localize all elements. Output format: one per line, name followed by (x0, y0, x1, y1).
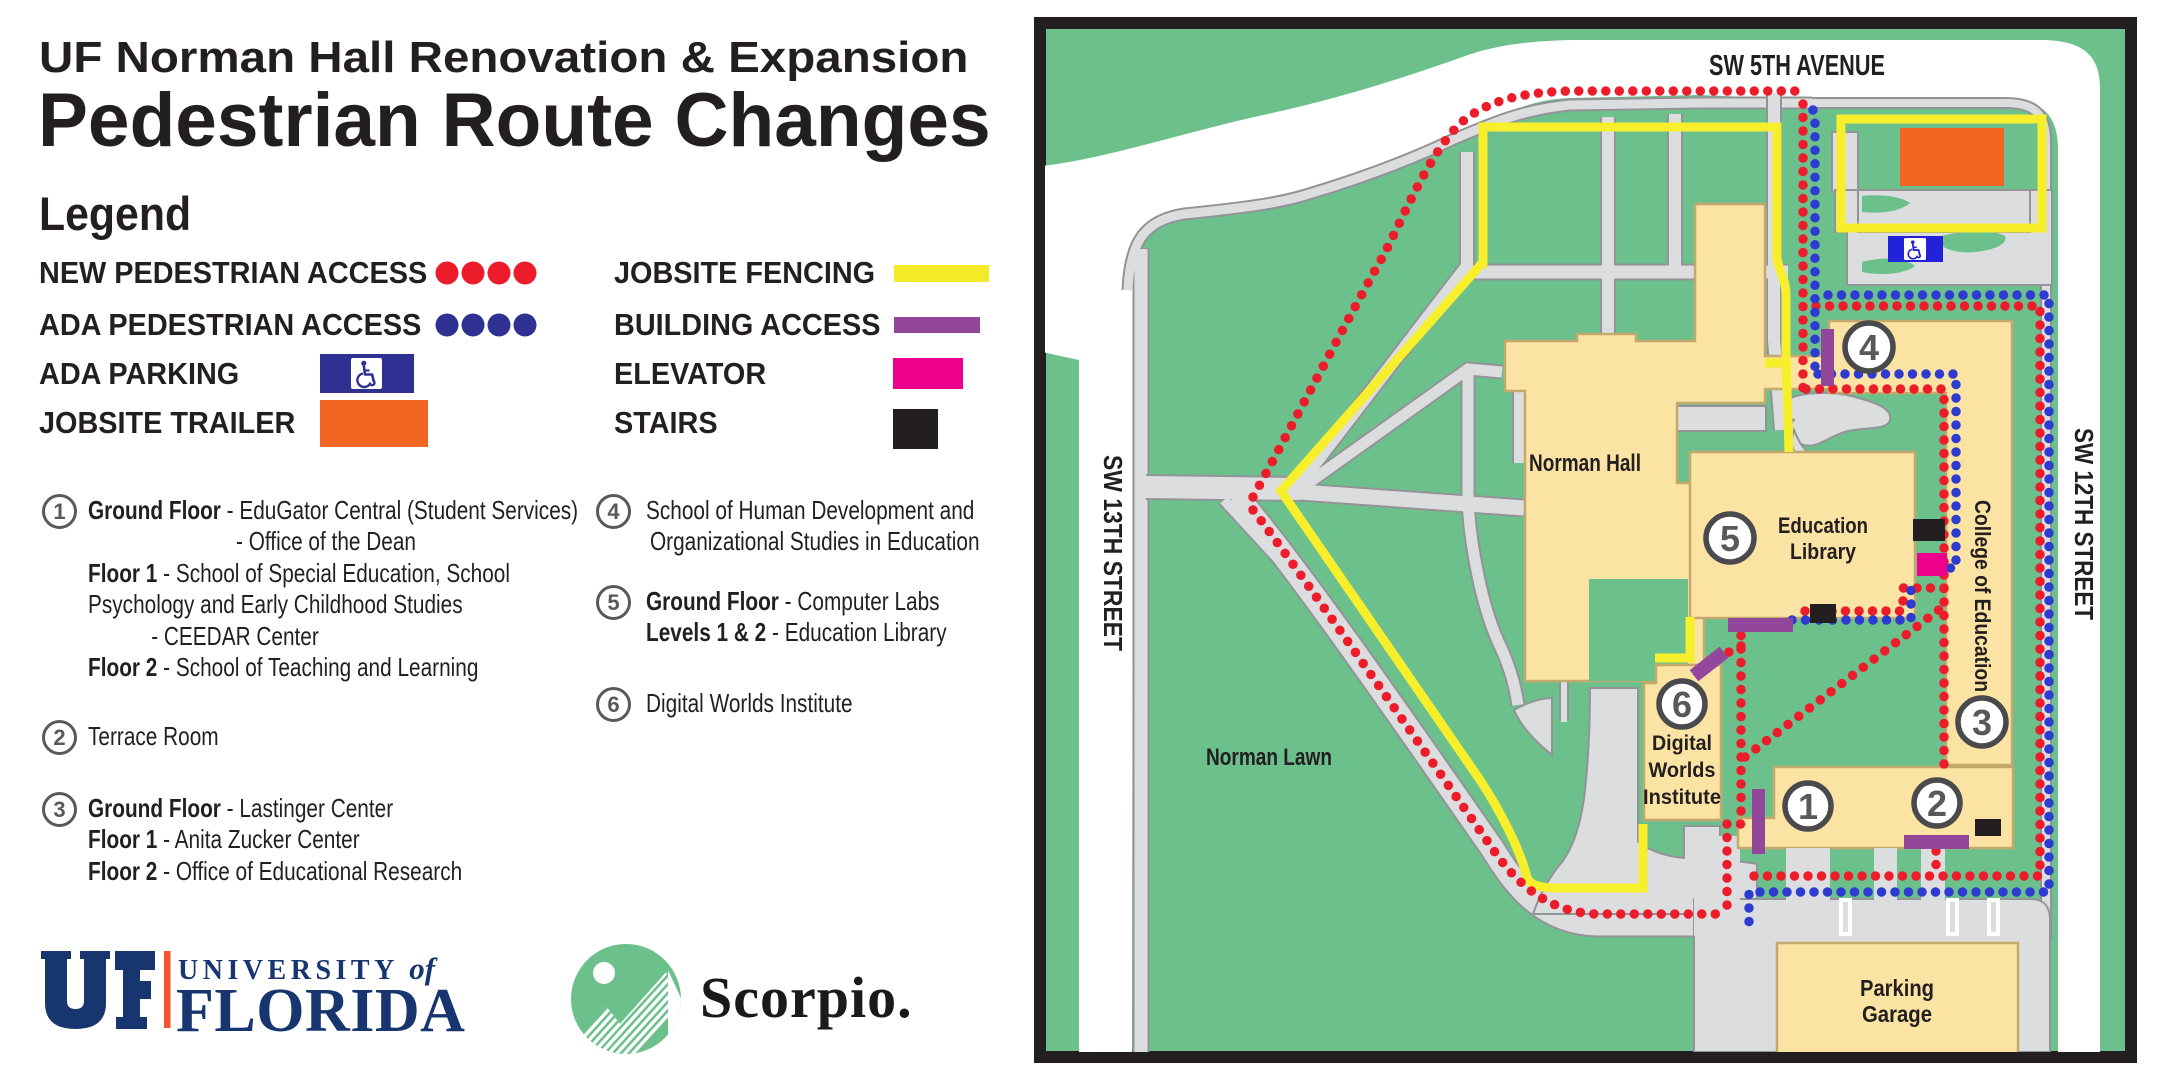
svg-text:Digital: Digital (1652, 732, 1712, 755)
svg-text:3: 3 (1972, 702, 1992, 743)
svg-text:Education: Education (1778, 513, 1868, 538)
svg-text:Norman Hall: Norman Hall (1529, 450, 1641, 477)
svg-text:Library: Library (1790, 539, 1857, 564)
svg-text:1: 1 (1798, 786, 1818, 827)
svg-text:Norman Lawn: Norman Lawn (1206, 744, 1332, 771)
svg-text:SW 5TH AVENUE: SW 5TH AVENUE (1709, 50, 1885, 82)
svg-text:SW 13TH STREET: SW 13TH STREET (1098, 455, 1128, 651)
svg-text:Institute: Institute (1643, 786, 1721, 809)
svg-text:5: 5 (1720, 518, 1740, 559)
svg-text:SW 12TH STREET: SW 12TH STREET (2069, 428, 2099, 620)
svg-text:6: 6 (1672, 684, 1692, 725)
svg-text:4: 4 (1859, 327, 1879, 368)
svg-text:Garage: Garage (1862, 1001, 1932, 1027)
svg-text:Worlds: Worlds (1649, 759, 1716, 782)
svg-text:College of Education: College of Education (1970, 500, 1995, 692)
svg-text:Parking: Parking (1860, 975, 1934, 1001)
svg-text:2: 2 (1927, 783, 1947, 824)
